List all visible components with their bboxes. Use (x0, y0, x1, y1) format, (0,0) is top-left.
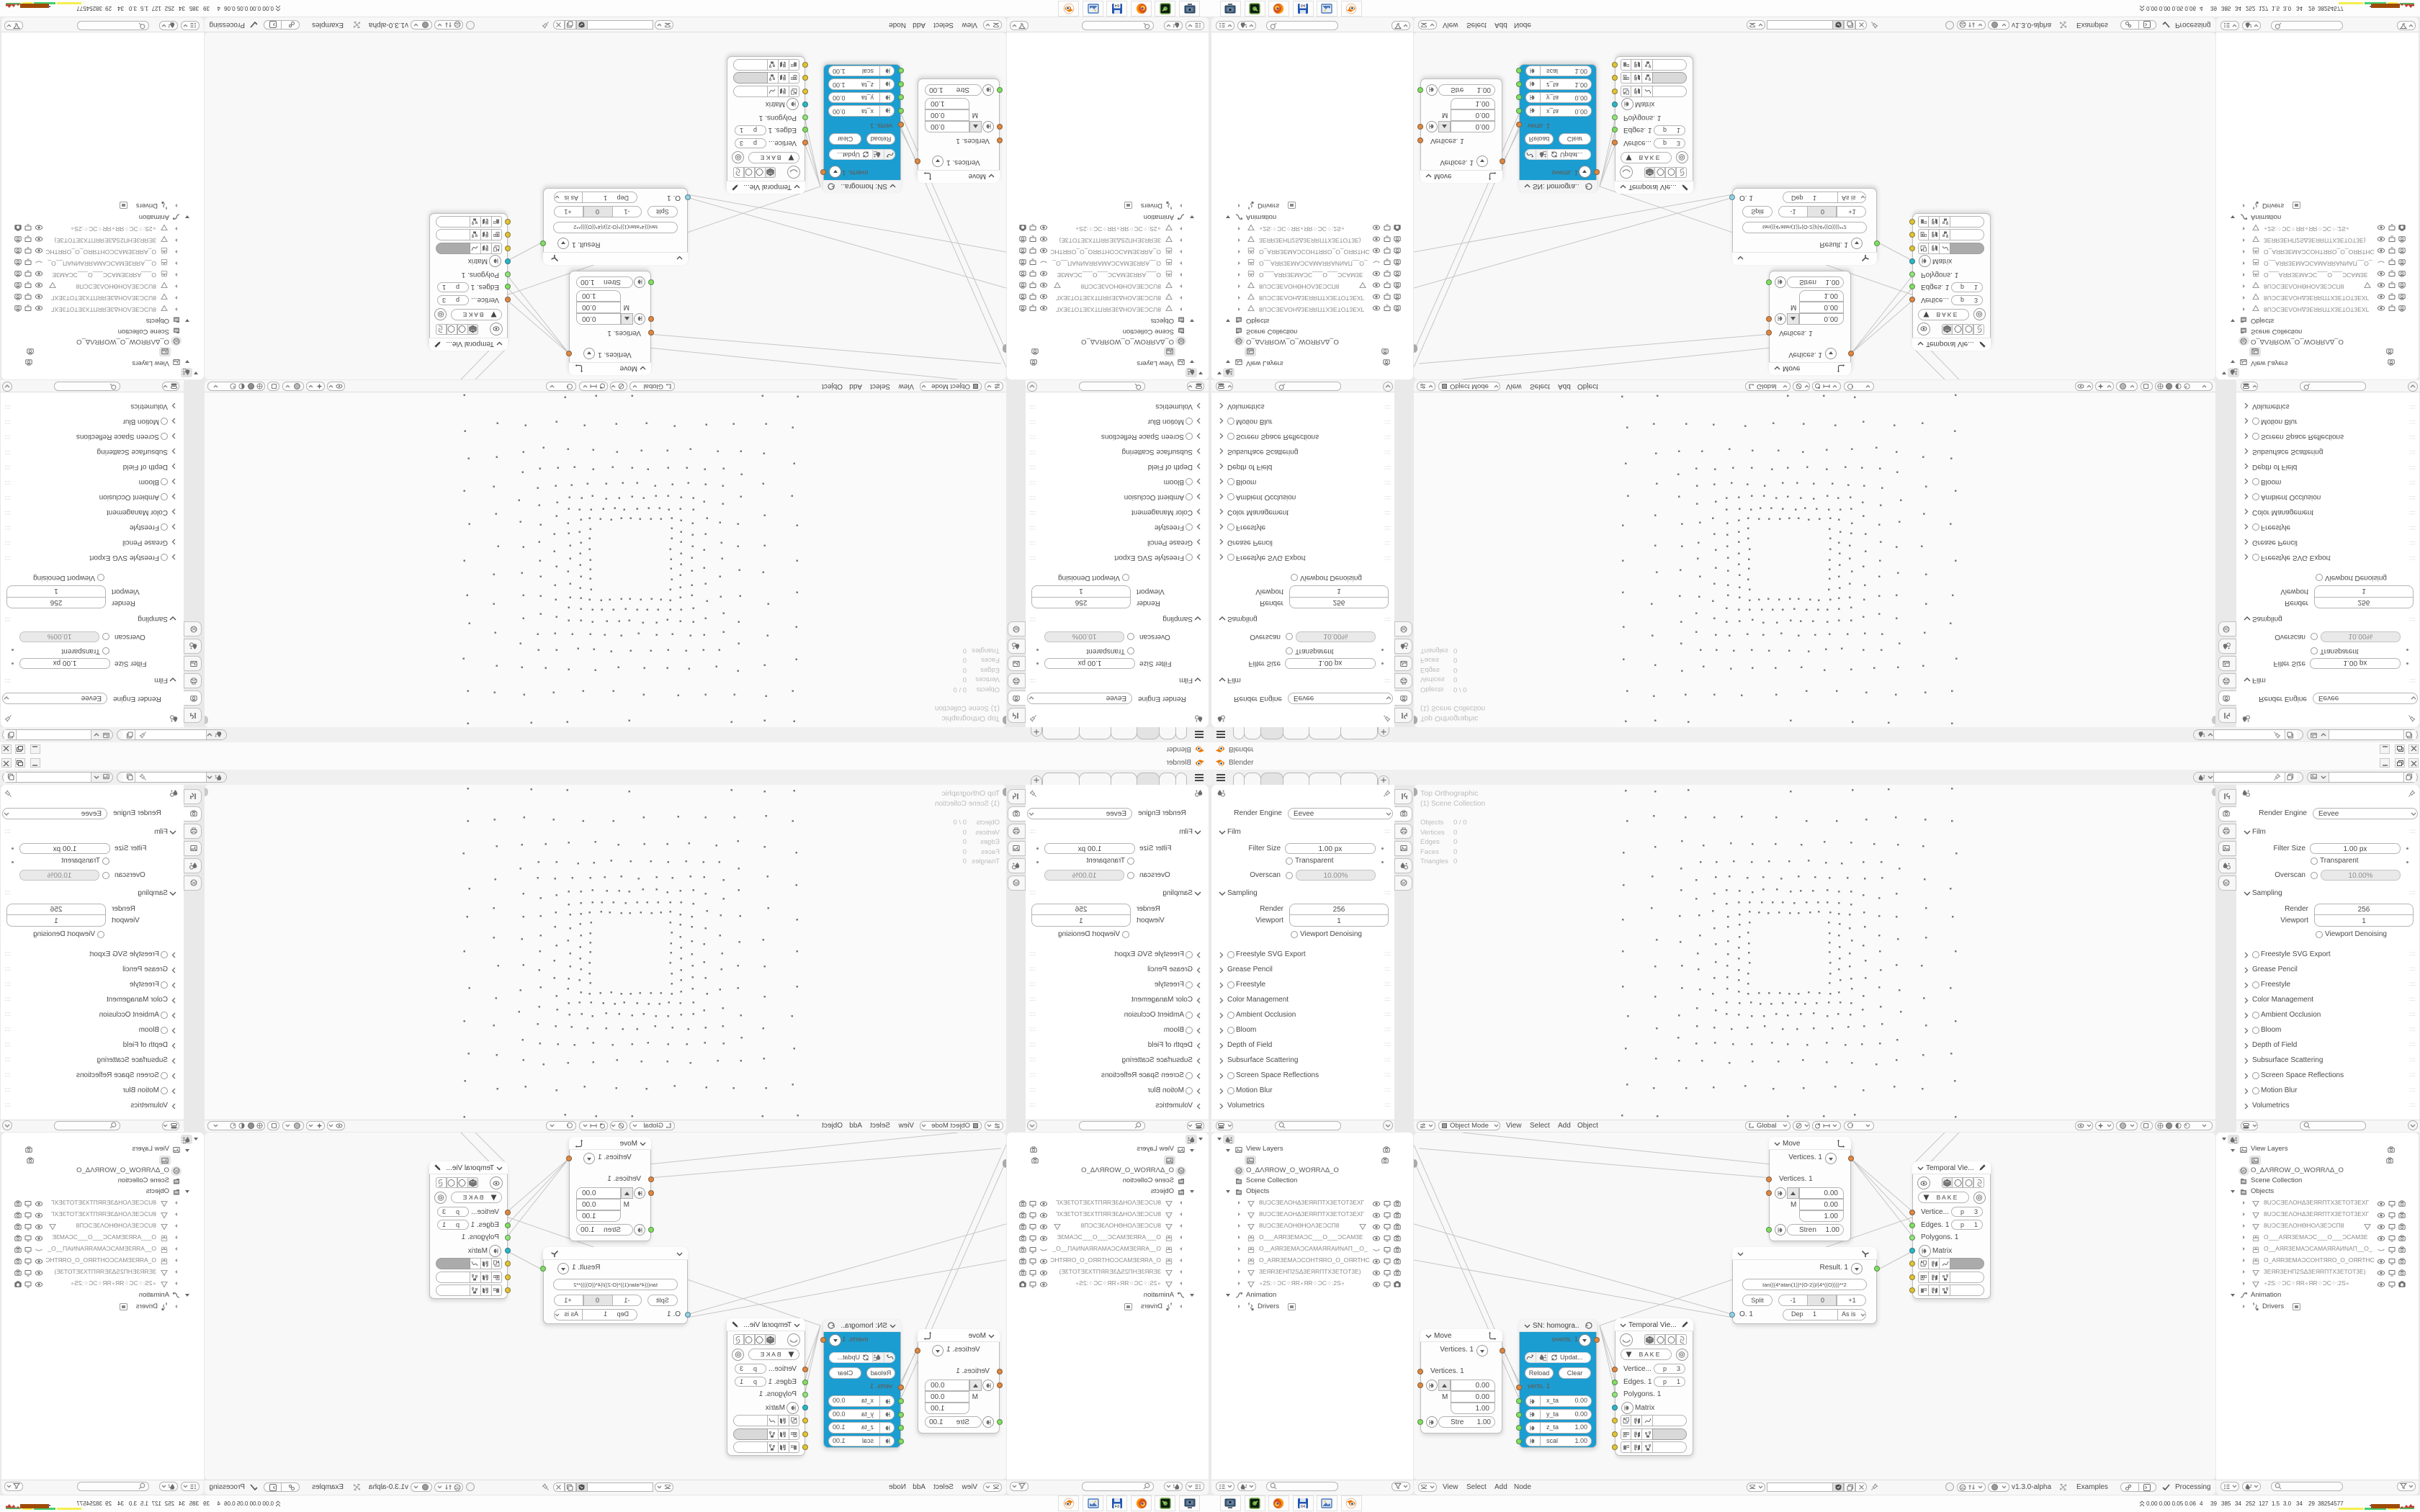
svg-text:64: 64 (1300, 1505, 1304, 1509)
svg-text:64: 64 (1300, 3, 1304, 7)
svg-text:64: 64 (1115, 1505, 1119, 1509)
svg-text:64: 64 (1115, 3, 1119, 7)
